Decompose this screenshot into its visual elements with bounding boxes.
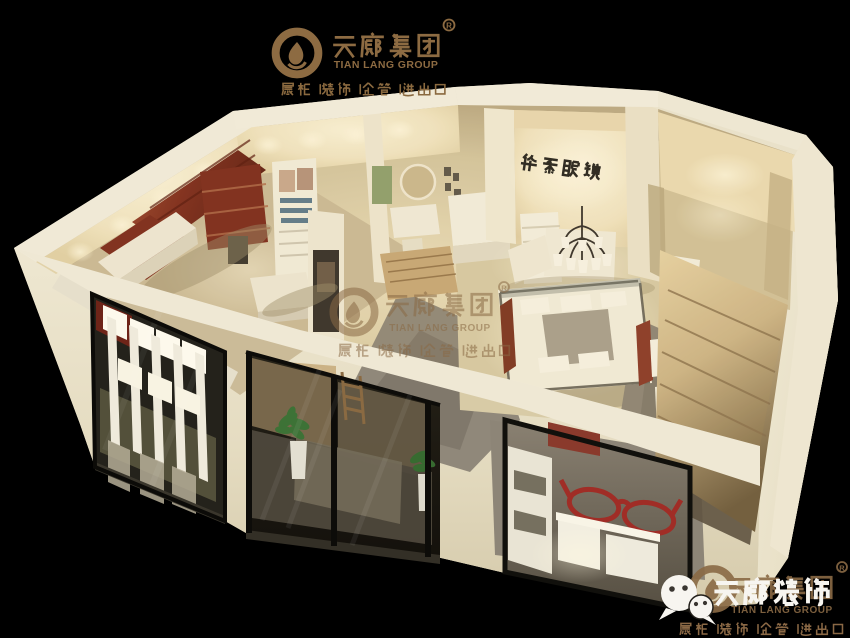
svg-text:TIAN LANG GROUP: TIAN LANG GROUP [389,323,490,334]
svg-text:R: R [839,564,845,573]
svg-text:TIAN LANG GROUP: TIAN LANG GROUP [731,605,832,616]
svg-text:TIAN LANG GROUP: TIAN LANG GROUP [334,59,439,71]
svg-text:R: R [446,22,452,31]
svg-text:R: R [501,284,507,293]
